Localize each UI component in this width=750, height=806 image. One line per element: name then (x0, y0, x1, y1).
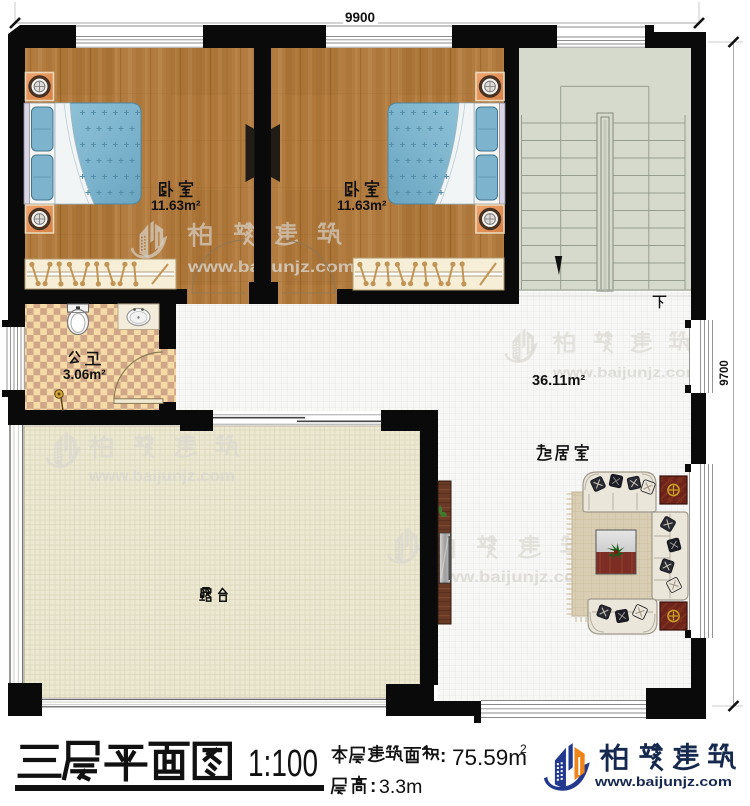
svg-text:11.63m²: 11.63m² (337, 198, 387, 213)
svg-text:9700: 9700 (719, 360, 731, 386)
svg-text:www.baijunjz.com: www.baijunjz.com (430, 569, 592, 586)
svg-text:3.06m²: 3.06m² (63, 367, 106, 382)
svg-text::: : (370, 776, 376, 797)
svg-text:9900: 9900 (345, 10, 375, 25)
svg-text:3.3m: 3.3m (379, 776, 422, 798)
svg-text::: : (440, 746, 446, 767)
svg-text:www.baijunjz.com: www.baijunjz.com (88, 468, 235, 485)
svg-text:2: 2 (520, 742, 527, 756)
svg-text:1:100: 1:100 (248, 743, 318, 785)
svg-text:www.baijunjz.com: www.baijunjz.com (594, 774, 732, 789)
svg-text:75.59m: 75.59m (452, 745, 527, 770)
svg-text:11.63m²: 11.63m² (151, 198, 201, 213)
svg-text:36.11m²: 36.11m² (532, 373, 585, 389)
